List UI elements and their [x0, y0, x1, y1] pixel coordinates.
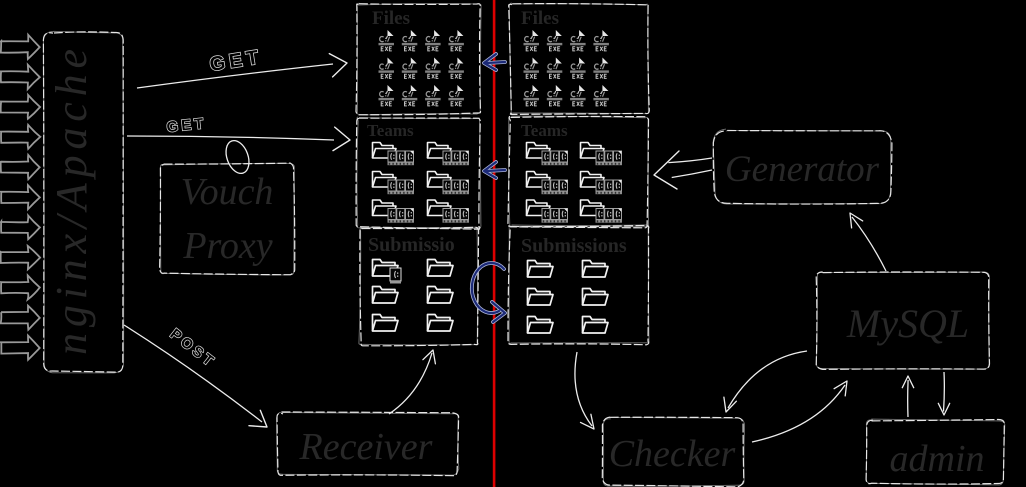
svg-text:Receiver: Receiver — [299, 426, 433, 468]
svg-text:Files: Files — [372, 8, 410, 29]
svg-text:Checker: Checker — [609, 433, 736, 475]
svg-text:Teams: Teams — [521, 121, 568, 140]
svg-text:Files: Files — [521, 8, 559, 29]
svg-text:Generator: Generator — [725, 149, 880, 190]
svg-text:Submissio: Submissio — [368, 234, 455, 256]
svg-text:Vouch: Vouch — [181, 171, 274, 213]
svg-text:nginx/Apache: nginx/Apache — [47, 49, 96, 355]
svg-text:Teams: Teams — [367, 121, 414, 140]
svg-text:Submissions: Submissions — [521, 235, 627, 257]
svg-text:MySQL: MySQL — [846, 301, 969, 346]
svg-text:Proxy: Proxy — [182, 225, 272, 267]
svg-text:admin: admin — [890, 438, 985, 480]
